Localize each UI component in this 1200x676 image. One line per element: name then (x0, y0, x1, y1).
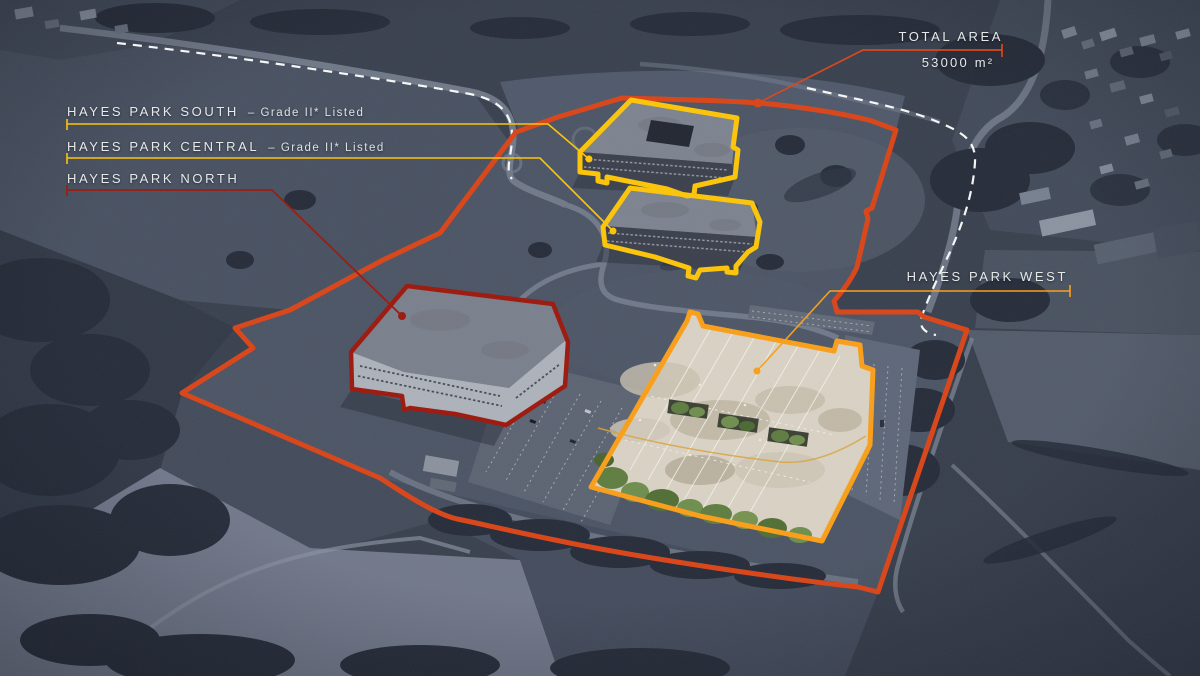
label-hayes-park-north: HAYES PARK NORTH (67, 171, 239, 186)
label-hayes-park-south: HAYES PARK SOUTH– Grade II* Listed (67, 104, 364, 121)
label-hayes-park-south-note: – Grade II* Listed (248, 107, 365, 119)
film-grain (0, 0, 1200, 676)
label-total-area-value: 53000 m² (885, 55, 1031, 70)
label-hayes-park-central: HAYES PARK CENTRAL– Grade II* Listed (67, 139, 385, 156)
label-hayes-park-west: HAYES PARK WEST (828, 269, 1068, 284)
site-plan-canvas: HAYES PARK SOUTH– Grade II* Listed HAYES… (0, 0, 1200, 676)
label-hayes-park-south-name: HAYES PARK SOUTH (67, 104, 239, 119)
label-total-area-title: TOTAL AREA (857, 29, 1003, 44)
label-hayes-park-central-name: HAYES PARK CENTRAL (67, 139, 259, 154)
aerial-diagram (0, 0, 1200, 676)
label-hayes-park-north-name: HAYES PARK NORTH (67, 171, 239, 186)
label-hayes-park-west-name: HAYES PARK WEST (907, 269, 1068, 284)
label-hayes-park-central-note: – Grade II* Listed (268, 142, 385, 154)
total-area-value-text: 53000 m² (922, 55, 995, 70)
total-area-title-text: TOTAL AREA (898, 29, 1003, 44)
